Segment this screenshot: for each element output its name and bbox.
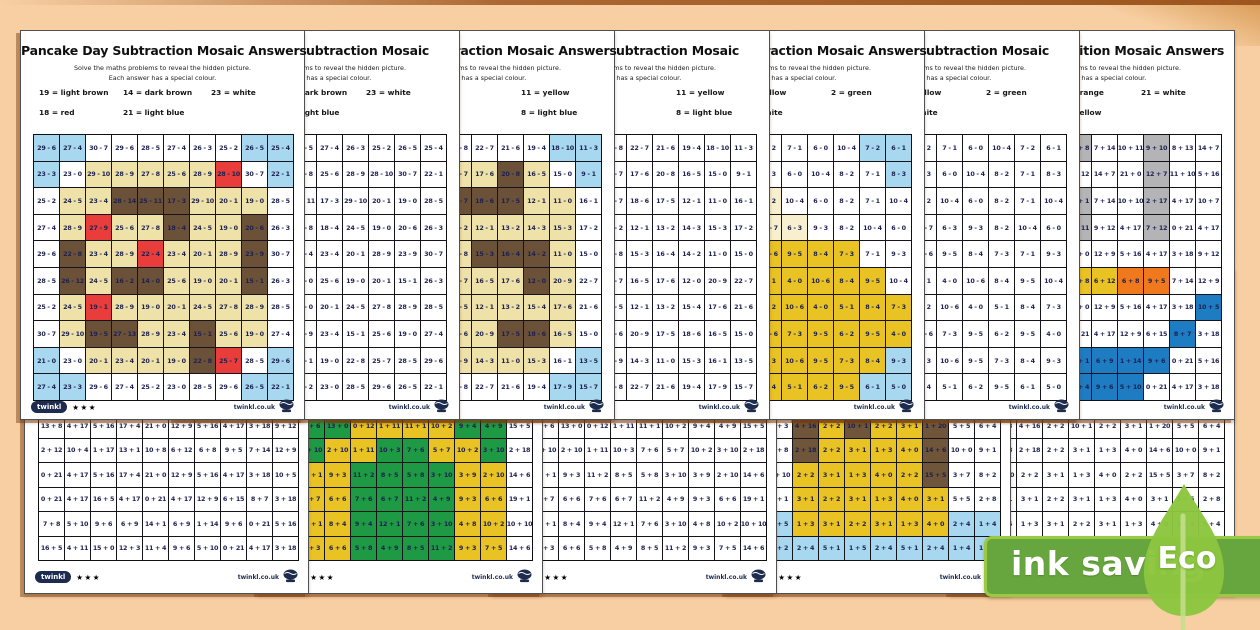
grid-cell: 5 + 10 <box>195 537 220 561</box>
grid-cell: 10 + 2 <box>455 439 480 463</box>
grid-cell: 20 - 9 <box>550 268 575 294</box>
grid-cell: 4 + 17 <box>1118 215 1143 241</box>
grid-cell: 19 - 0 <box>317 348 342 374</box>
grid-cell: 2 + 2 <box>1043 439 1068 463</box>
grid-cell: 17 - 5 <box>498 321 523 347</box>
difficulty-stars: ★★★ <box>310 573 335 582</box>
grid-cell: 9 - 5 <box>963 348 988 374</box>
grid-cell: 14 - 2 <box>679 241 704 267</box>
grid-cell: 9 - 5 <box>808 348 833 374</box>
grid-cell: 25 - 2 <box>216 135 241 161</box>
grid-cell: 2 + 4 <box>949 512 974 536</box>
grid-cell: 15 - 0 <box>731 241 756 267</box>
grid-cell: 9 - 3 <box>1041 241 1066 267</box>
grid-cell: 20 - 9 <box>627 321 652 347</box>
grid-cell: 15 - 3 <box>705 215 730 241</box>
grid-cell: 4 + 0 <box>1095 463 1120 487</box>
grid-cell: 3 + 1 <box>1017 488 1042 512</box>
grid-cell: 1 + 14 <box>195 512 220 536</box>
grid-cell: 1 + 3 <box>1069 463 1094 487</box>
grid-cell: 12 - 1 <box>472 295 497 321</box>
grid-cell: 23 - 3 <box>60 374 85 400</box>
grid-cell: 10 + 2 <box>715 512 740 536</box>
grid-cell: 5 + 7 <box>429 439 454 463</box>
grid-cell: 18 - 10 <box>550 135 575 161</box>
grid-cell: 10 + 5 <box>273 463 298 487</box>
difficulty-stars: ★★★ <box>76 573 101 582</box>
grid-cell: 27 - 4 <box>112 374 137 400</box>
grid-cell: 10 - 4 <box>808 162 833 188</box>
grid-cell: 15 - 1 <box>190 321 215 347</box>
grid-cell: 6 - 1 <box>886 135 911 161</box>
grid-cell: 20 - 1 <box>216 268 241 294</box>
grid-cell: 3 + 7 <box>949 463 974 487</box>
grid-cell: 7 + 5 <box>715 537 740 561</box>
grid-cell: 6 + 7 <box>377 488 402 512</box>
grid-cell: 3 + 1 <box>819 463 844 487</box>
grid-cell: 23 - 0 <box>164 374 189 400</box>
grid-cell: 8 - 3 <box>1041 162 1066 188</box>
grid-cell: 23 - 9 <box>242 241 267 267</box>
mosaic-grid: 1 + 34 + 162 + 210 + 12 + 23 + 11 + 205 … <box>766 413 1001 561</box>
grid-cell: 20 - 1 <box>369 268 394 294</box>
grid-cell: 1 + 3 <box>871 488 896 512</box>
grid-cell: 21 + 0 <box>1118 162 1143 188</box>
grid-cell: 27 - 4 <box>317 135 342 161</box>
footer-site: twinkl.co.uk <box>1009 398 1069 417</box>
grid-cell: 10 + 3 <box>611 439 636 463</box>
grid-cell: 1 + 4 <box>975 512 1000 536</box>
stamp-icon-wrap <box>744 398 759 417</box>
colour-key-entry: 23 = white <box>366 88 411 97</box>
grid-cell: 10 - 6 <box>782 348 807 374</box>
grid-cell: 9 + 5 <box>221 439 246 463</box>
grid-cell: 19 - 0 <box>343 268 368 294</box>
grid-cell: 4 + 0 <box>923 512 948 536</box>
grid-cell: 4 + 9 <box>611 537 636 561</box>
grid-cell: 23 - 4 <box>164 321 189 347</box>
grid-cell: 26 - 5 <box>242 374 267 400</box>
twinkl-stamp-icon <box>751 569 766 583</box>
grid-cell: 3 + 10 <box>663 512 688 536</box>
grid-cell: 22 - 7 <box>627 135 652 161</box>
grid-cell: 21 - 6 <box>731 295 756 321</box>
colour-key-entry: 18 = red <box>39 108 75 117</box>
grid-cell: 10 - 6 <box>782 295 807 321</box>
grid-cell: 20 - 1 <box>317 295 342 321</box>
grid-cell: 3 + 10 <box>481 439 506 463</box>
grid-cell: 16 - 1 <box>576 188 601 214</box>
grid-cell: 22 - 1 <box>421 162 446 188</box>
website-label: twinkl.co.uk <box>472 574 513 581</box>
grid-cell: 2 + 2 <box>845 512 870 536</box>
grid-cell: 27 - 8 <box>138 215 163 241</box>
mosaic-grid: 7 + 613 + 00 + 121 + 1111 + 110 + 29 + 4… <box>298 413 533 561</box>
grid-cell: 25 - 6 <box>369 321 394 347</box>
grid-cell: 10 + 10 <box>741 512 766 536</box>
stamp-icon-wrap <box>1054 398 1069 417</box>
colour-key-entry: 11 = yellow <box>676 88 724 97</box>
grid-cell: 4 + 8 <box>689 512 714 536</box>
footer-brand: twinkl★★★ <box>35 571 101 583</box>
grid-cell: 24 - 5 <box>60 295 85 321</box>
grid-cell: 3 + 10 <box>663 463 688 487</box>
grid-cell: 19 - 0 <box>395 321 420 347</box>
grid-cell: 8 - 4 <box>860 295 885 321</box>
grid-cell: 16 - 5 <box>472 268 497 294</box>
grid-cell: 2 + 10 <box>325 439 350 463</box>
grid-cell: 9 + 3 <box>455 537 480 561</box>
grid-cell: 23 - 4 <box>317 241 342 267</box>
grid-cell: 3 + 10 <box>715 439 740 463</box>
website-label: twinkl.co.uk <box>1009 404 1050 411</box>
grid-cell: 7 - 3 <box>989 348 1014 374</box>
grid-cell: 8 - 3 <box>886 162 911 188</box>
grid-cell: 5 + 8 <box>585 537 610 561</box>
grid-cell: 26 - 5 <box>395 374 420 400</box>
grid-cell: 9 - 5 <box>937 241 962 267</box>
grid-cell: 2 + 8 <box>975 488 1000 512</box>
grid-cell: 5 - 1 <box>834 295 859 321</box>
grid-cell: 2 + 2 <box>1069 512 1094 536</box>
twinkl-stamp-icon <box>283 569 298 583</box>
website-label: twinkl.co.uk <box>238 574 279 581</box>
grid-cell: 5 + 8 <box>637 463 662 487</box>
grid-cell: 19 - 0 <box>395 188 420 214</box>
stamp-icon-wrap <box>434 398 449 417</box>
grid-cell: 7 - 2 <box>860 135 885 161</box>
grid-cell: 11 + 2 <box>663 537 688 561</box>
grid-cell: 22 - 1 <box>268 374 293 400</box>
grid-cell: 17 + 4 <box>117 463 142 487</box>
grid-cell: 11 - 0 <box>705 188 730 214</box>
grid-cell: 2 + 18 <box>793 439 818 463</box>
grid-cell: 10 - 4 <box>1041 188 1066 214</box>
grid-cell: 9 - 3 <box>1041 348 1066 374</box>
grid-cell: 27 - 4 <box>268 321 293 347</box>
grid-cell: 17 - 6 <box>627 162 652 188</box>
grid-cell: 8 + 13 <box>1170 135 1195 161</box>
grid-cell: 9 - 5 <box>1015 321 1040 347</box>
grid-cell: 20 - 1 <box>369 188 394 214</box>
grid-cell: 11 + 10 <box>1170 162 1195 188</box>
grid-cell: 4 + 0 <box>897 488 922 512</box>
grid-cell: 4 + 17 <box>65 463 90 487</box>
grid-cell: 12 - 1 <box>627 295 652 321</box>
grid-cell: 8 + 2 <box>975 463 1000 487</box>
grid-cell: 9 - 5 <box>1015 268 1040 294</box>
grid-cell: 4 + 17 <box>1196 215 1221 241</box>
grid-cell: 9 + 12 <box>1196 241 1221 267</box>
grid-cell: 28 - 5 <box>34 268 59 294</box>
grid-cell: 8 - 4 <box>834 268 859 294</box>
grid-cell: 19 - 1 <box>86 295 111 321</box>
grid-cell: 27 - 4 <box>164 135 189 161</box>
grid-cell: 17 - 9 <box>705 374 730 400</box>
grid-cell: 4 + 9 <box>663 488 688 512</box>
difficulty-stars: ★★★ <box>72 403 97 412</box>
grid-cell: 22 - 8 <box>343 348 368 374</box>
grid-cell: 29 - 6 <box>216 374 241 400</box>
grid-cell: 22 - 1 <box>421 374 446 400</box>
grid-cell: 13 - 2 <box>653 295 678 321</box>
grid-cell: 5 + 16 <box>1196 162 1221 188</box>
grid-cell: 28 - 9 <box>112 241 137 267</box>
grid-cell: 14 - 2 <box>524 241 549 267</box>
grid-cell: 5 + 10 <box>1118 374 1143 400</box>
grid-cell: 12 - 1 <box>524 188 549 214</box>
grid-cell: 21 + 0 <box>143 463 168 487</box>
colour-key-entry: 8 = light blue <box>676 108 732 117</box>
grid-cell: 2 + 17 <box>1144 188 1169 214</box>
grid-cell: 12 - 1 <box>472 215 497 241</box>
grid-cell: 15 - 0 <box>705 162 730 188</box>
grid-cell: 28 - 9 <box>138 321 163 347</box>
grid-cell: 2 + 2 <box>897 463 922 487</box>
grid-cell: 4 + 17 <box>1092 321 1117 347</box>
grid-cell: 10 - 6 <box>963 268 988 294</box>
worksheet-subtitle-line2: Each answer has a special colour. <box>21 74 304 82</box>
grid-cell: 8 - 2 <box>989 188 1014 214</box>
grid-cell: 18 - 6 <box>524 321 549 347</box>
grid-cell: 3 + 9 <box>455 463 480 487</box>
grid-cell: 15 - 3 <box>679 348 704 374</box>
grid-cell: 19 - 0 <box>369 215 394 241</box>
grid-cell: 10 - 6 <box>937 295 962 321</box>
grid-cell: 15 - 0 <box>576 241 601 267</box>
grid-cell: 7 - 1 <box>1015 188 1040 214</box>
grid-cell: 3 + 1 <box>1069 488 1094 512</box>
grid-cell: 15 - 7 <box>576 374 601 400</box>
grid-cell: 10 - 6 <box>808 268 833 294</box>
footer-brand: twinkl★★★ <box>31 401 97 413</box>
grid-cell: 21 - 6 <box>576 295 601 321</box>
worksheet-subtitle-line1: Solve the maths problems to reveal the h… <box>21 64 304 72</box>
grid-cell: 22 - 8 <box>190 348 215 374</box>
grid-cell: 22 - 8 <box>60 241 85 267</box>
grid-cell: 9 + 4 <box>585 512 610 536</box>
grid-cell: 10 - 4 <box>937 188 962 214</box>
colour-key-entry: 2 = green <box>986 88 1027 97</box>
subtraction-mosaic-answers-1: Pancake Day Subtraction Mosaic AnswersSo… <box>20 30 305 420</box>
grid-cell: 10 - 4 <box>782 188 807 214</box>
grid-cell: 28 - 9 <box>395 295 420 321</box>
grid-cell: 2 + 10 <box>481 463 506 487</box>
grid-cell: 0 + 21 <box>39 463 64 487</box>
grid-cell: 7 + 6 <box>585 488 610 512</box>
grid-cell: 28 - 9 <box>190 162 215 188</box>
grid-cell: 6 - 3 <box>782 215 807 241</box>
grid-cell: 10 - 4 <box>834 135 859 161</box>
grid-cell: 12 - 0 <box>679 268 704 294</box>
grid-cell: 15 - 7 <box>731 374 756 400</box>
mosaic-grid: 28 - 527 - 426 - 325 - 226 - 525 - 427 -… <box>290 134 447 401</box>
grid-cell: 18 - 10 <box>705 135 730 161</box>
grid-cell: 9 + 6 <box>221 512 246 536</box>
grid-cell: 1 + 3 <box>793 512 818 536</box>
grid-cell: 29 - 10 <box>60 321 85 347</box>
grid-cell: 27 - 4 <box>34 215 59 241</box>
grid-cell: 5 + 1 <box>897 537 922 561</box>
grid-cell: 15 - 3 <box>472 241 497 267</box>
grid-cell: 29 - 6 <box>112 135 137 161</box>
grid-cell: 11 - 3 <box>731 135 756 161</box>
grid-cell: 7 + 12 <box>1144 215 1169 241</box>
footer-site: twinkl.co.uk <box>238 568 298 587</box>
grid-cell: 22 - 4 <box>138 241 163 267</box>
grid-cell: 12 + 9 <box>1118 321 1143 347</box>
grid-cell: 23 - 0 <box>60 348 85 374</box>
grid-cell: 6 - 0 <box>782 162 807 188</box>
page-title-answers: Answers <box>868 43 926 58</box>
stamp-icon-wrap <box>751 568 766 587</box>
grid-cell: 2 + 2 <box>793 463 818 487</box>
colour-key-entry: 14 = dark brown <box>123 88 192 97</box>
grid-cell: 3 + 18 <box>1170 241 1195 267</box>
grid-cell: 6 - 0 <box>808 188 833 214</box>
colour-key-entry: 8 = light blue <box>521 108 577 117</box>
grid-cell: 13 - 5 <box>731 348 756 374</box>
grid-cell: 8 - 2 <box>834 215 859 241</box>
grid-cell: 3 + 1 <box>871 512 896 536</box>
grid-cell: 4 + 17 <box>169 488 194 512</box>
grid-cell: 9 - 5 <box>989 374 1014 400</box>
grid-cell: 10 + 8 <box>143 439 168 463</box>
stamp-icon-wrap <box>279 398 294 417</box>
grid-cell: 0 + 21 <box>1144 374 1169 400</box>
grid-cell: 8 - 4 <box>808 241 833 267</box>
grid-cell: 28 - 9 <box>369 241 394 267</box>
grid-cell: 2 + 2 <box>1017 463 1042 487</box>
grid-cell: 11 - 0 <box>653 348 678 374</box>
grid-cell: 28 - 9 <box>60 215 85 241</box>
grid-cell: 3 + 1 <box>819 512 844 536</box>
grid-cell: 7 - 1 <box>860 162 885 188</box>
grid-cell: 7 + 14 <box>247 439 272 463</box>
grid-cell: 5 + 8 <box>351 537 376 561</box>
grid-cell: 19 - 0 <box>164 348 189 374</box>
grid-cell: 6 + 6 <box>325 488 350 512</box>
grid-cell: 16 + 5 <box>39 537 64 561</box>
grid-cell: 14 + 6 <box>507 463 532 487</box>
grid-cell: 25 - 2 <box>34 295 59 321</box>
grid-cell: 28 - 5 <box>242 348 267 374</box>
grid-cell: 5 - 1 <box>937 374 962 400</box>
grid-cell: 3 + 1 <box>1095 512 1120 536</box>
grid-cell: 15 - 1 <box>395 268 420 294</box>
grid-cell: 17 - 5 <box>653 188 678 214</box>
grid-cell: 29 - 6 <box>268 348 293 374</box>
grid-cell: 17 - 9 <box>550 374 575 400</box>
grid-cell: 4 - 0 <box>886 321 911 347</box>
grid-cell: 7 - 2 <box>1015 135 1040 161</box>
page-title: Pancake Day Subtraction Mosaic Answers <box>21 43 304 58</box>
grid-cell: 7 + 6 <box>403 512 428 536</box>
grid-cell: 4 + 11 <box>65 537 90 561</box>
grid-cell: 19 - 4 <box>679 135 704 161</box>
grid-cell: 6 - 2 <box>989 321 1014 347</box>
page-title-answers: Answers <box>558 43 616 58</box>
grid-cell: 3 + 1 <box>923 488 948 512</box>
grid-cell: 25 - 6 <box>112 215 137 241</box>
grid-cell: 6 + 9 <box>1092 348 1117 374</box>
grid-cell: 6 + 15 <box>221 488 246 512</box>
grid-cell: 12 + 1 <box>377 512 402 536</box>
grid-cell: 7 - 3 <box>989 241 1014 267</box>
grid-cell: 6 - 2 <box>834 321 859 347</box>
grid-cell: 28 - 14 <box>112 188 137 214</box>
page-title-answers: Answers <box>1166 43 1224 58</box>
mosaic-grid: 23 - 822 - 721 - 619 - 418 - 1011 - 318 … <box>445 134 602 401</box>
grid-cell: 3 + 1 <box>845 488 870 512</box>
grid-cell: 9 + 3 <box>689 488 714 512</box>
twinkl-stamp-icon <box>1054 399 1069 413</box>
grid-cell: 1 + 3 <box>1017 512 1042 536</box>
grid-cell: 3 + 18 <box>1170 295 1195 321</box>
grid-cell: 27 - 9 <box>86 215 111 241</box>
grid-cell: 2 + 2 <box>819 488 844 512</box>
grid-cell: 21 - 6 <box>498 374 523 400</box>
twinkl-stamp-icon <box>1209 399 1224 413</box>
mosaic-grid: 8 - 27 - 16 - 010 - 47 - 26 - 19 - 36 - … <box>910 134 1067 401</box>
grid-cell: 14 - 3 <box>679 215 704 241</box>
grid-cell: 3 + 1 <box>1069 439 1094 463</box>
footer-site: twinkl.co.uk <box>472 568 532 587</box>
stamp-icon-wrap <box>1209 398 1224 417</box>
grid-cell: 20 - 6 <box>395 215 420 241</box>
grid-cell: 4 + 17 <box>117 488 142 512</box>
grid-cell: 17 - 2 <box>731 215 756 241</box>
grid-cell: 13 - 2 <box>498 215 523 241</box>
footer-site: twinkl.co.uk <box>706 568 766 587</box>
grid-cell: 9 + 1 <box>975 439 1000 463</box>
grid-cell: 9 + 6 <box>91 512 116 536</box>
grid-cell: 9 + 3 <box>455 488 480 512</box>
grid-cell: 7 - 3 <box>886 295 911 321</box>
grid-cell: 3 + 10 <box>429 512 454 536</box>
grid-cell: 9 - 5 <box>963 321 988 347</box>
mosaic-grid: 8 - 27 - 16 - 010 - 47 - 26 - 19 - 36 - … <box>755 134 912 401</box>
colour-key-entry: 19 = light brown <box>39 88 108 97</box>
grid-cell: 9 + 3 <box>325 463 350 487</box>
grid-cell: 26 - 12 <box>60 268 85 294</box>
footer-site: twinkl.co.uk <box>389 398 449 417</box>
grid-cell: 8 + 4 <box>559 512 584 536</box>
grid-cell: 9 - 1 <box>576 162 601 188</box>
grid-cell: 4 + 17 <box>1144 241 1169 267</box>
website-label: twinkl.co.uk <box>699 404 740 411</box>
grid-cell: 20 - 1 <box>343 241 368 267</box>
grid-cell: 30 - 7 <box>34 321 59 347</box>
grid-cell: 9 - 5 <box>834 374 859 400</box>
grid-cell: 22 - 1 <box>268 162 293 188</box>
grid-cell: 6 - 0 <box>937 162 962 188</box>
grid-cell: 6 + 12 <box>169 439 194 463</box>
grid-cell: 14 - 3 <box>472 348 497 374</box>
twinkl-logo: twinkl <box>31 401 67 413</box>
grid-cell: 12 + 9 <box>1092 295 1117 321</box>
grid-cell: 0 + 21 <box>39 488 64 512</box>
grid-cell: 28 - 5 <box>268 188 293 214</box>
grid-cell: 6 - 0 <box>808 135 833 161</box>
grid-cell: 3 + 18 <box>273 488 298 512</box>
grid-cell: 25 - 2 <box>34 188 59 214</box>
grid-cell: 4 + 17 <box>1170 188 1195 214</box>
grid-cell: 8 - 2 <box>834 162 859 188</box>
grid-cell: 2 + 4 <box>793 537 818 561</box>
grid-cell: 15 - 3 <box>627 241 652 267</box>
grid-cell: 2 + 18 <box>741 439 766 463</box>
